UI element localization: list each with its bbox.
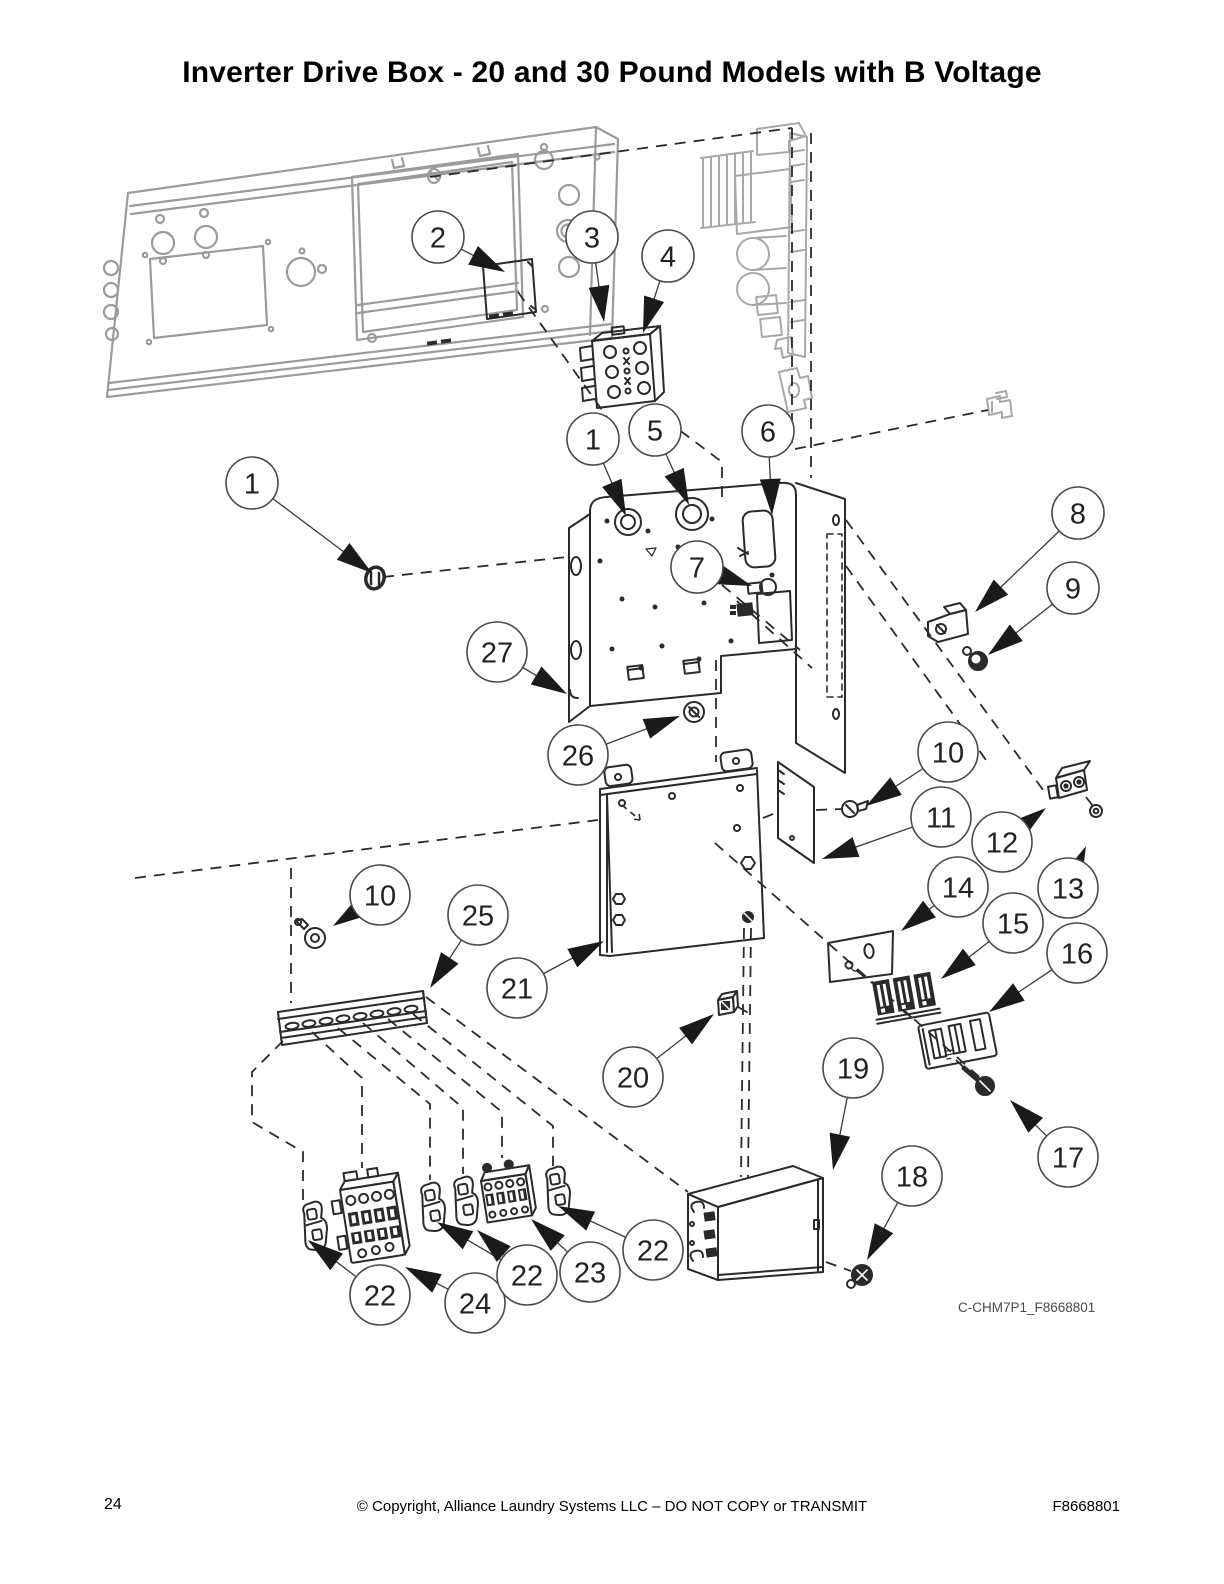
svg-text:25: 25 bbox=[462, 900, 494, 932]
svg-text:27: 27 bbox=[481, 637, 513, 669]
page-footer: 24 © Copyright, Alliance Laundry Systems… bbox=[0, 1496, 1224, 1526]
terminal-block-drawing bbox=[580, 326, 664, 408]
inverter-drive-drawing bbox=[701, 123, 812, 412]
callout-14: 14 bbox=[901, 857, 988, 931]
svg-text:13: 13 bbox=[1052, 873, 1084, 905]
svg-text:2: 2 bbox=[430, 222, 446, 254]
svg-text:15: 15 bbox=[997, 908, 1029, 940]
svg-text:7: 7 bbox=[689, 552, 705, 584]
callout-12: 12 bbox=[972, 808, 1046, 872]
contactor-24-drawing bbox=[328, 1165, 411, 1265]
terminal-12-drawing bbox=[1048, 761, 1090, 799]
callout-2: 2 bbox=[412, 211, 505, 272]
callout-1: 1 bbox=[226, 457, 372, 573]
svg-text:22: 22 bbox=[364, 1280, 396, 1312]
callout-24: 24 bbox=[405, 1267, 505, 1333]
svg-text:22: 22 bbox=[637, 1235, 669, 1267]
manual-page: Inverter Drive Box - 20 and 30 Pound Mod… bbox=[0, 0, 1224, 1584]
contactor-23-drawing bbox=[478, 1157, 536, 1222]
control-board-drawing bbox=[778, 762, 814, 863]
rear-panel-drawing bbox=[104, 127, 618, 397]
callout-1: 1 bbox=[567, 413, 626, 516]
screw-26-drawing bbox=[684, 702, 704, 722]
cover-box-drawing bbox=[688, 1166, 823, 1280]
mounting-bracket-drawing bbox=[569, 483, 845, 773]
small-block-20-drawing bbox=[718, 991, 738, 1015]
svg-text:21: 21 bbox=[501, 973, 533, 1005]
svg-text:8: 8 bbox=[1070, 498, 1086, 530]
svg-text:5: 5 bbox=[647, 415, 663, 447]
clamp-bracket-drawing bbox=[928, 603, 968, 642]
figure-code: C-CHM7P1_F8668801 bbox=[958, 1300, 1095, 1315]
svg-text:22: 22 bbox=[511, 1260, 543, 1292]
svg-text:11: 11 bbox=[926, 802, 956, 834]
screw-10-left-drawing bbox=[295, 919, 325, 948]
callout-18: 18 bbox=[867, 1146, 942, 1260]
callout-5: 5 bbox=[629, 404, 689, 505]
callout-20: 20 bbox=[603, 1014, 714, 1107]
svg-text:26: 26 bbox=[562, 740, 594, 772]
callout-10: 10 bbox=[333, 865, 410, 926]
copyright-text: © Copyright, Alliance Laundry Systems LL… bbox=[0, 1498, 1224, 1515]
svg-text:12: 12 bbox=[986, 827, 1018, 859]
callout-4: 4 bbox=[642, 230, 694, 333]
din-clip-22c bbox=[450, 1175, 481, 1226]
svg-text:9: 9 bbox=[1065, 573, 1081, 605]
callout-27: 27 bbox=[467, 622, 567, 694]
screw-18-drawing bbox=[847, 1265, 872, 1288]
svg-text:20: 20 bbox=[617, 1062, 649, 1094]
document-number: F8668801 bbox=[1052, 1498, 1120, 1515]
callout-6: 6 bbox=[742, 405, 794, 515]
svg-text:10: 10 bbox=[932, 737, 964, 769]
svg-text:1: 1 bbox=[244, 468, 260, 500]
callout-17: 17 bbox=[1010, 1100, 1098, 1187]
svg-text:23: 23 bbox=[574, 1257, 606, 1289]
din-rail-drawing bbox=[278, 991, 427, 1045]
callout-11: 11 bbox=[822, 787, 971, 859]
callout-9: 9 bbox=[988, 562, 1099, 655]
screw-10-right-drawing bbox=[842, 801, 868, 817]
exploded-parts-diagram: 2341561789272610111213141516171920182125… bbox=[0, 0, 1224, 1584]
svg-text:14: 14 bbox=[942, 872, 974, 904]
fuse-block-drawing bbox=[870, 971, 940, 1023]
inner-panel-drawing bbox=[600, 749, 764, 956]
screw-13-drawing bbox=[1090, 805, 1102, 817]
svg-text:4: 4 bbox=[660, 241, 676, 273]
screw-17-drawing bbox=[964, 1068, 994, 1095]
svg-text:10: 10 bbox=[364, 880, 396, 912]
callout-13: 13 bbox=[1038, 846, 1098, 918]
callout-layer: 2341561789272610111213141516171920182125… bbox=[226, 211, 1107, 1333]
gray-clip-drawing bbox=[987, 391, 1012, 418]
svg-text:17: 17 bbox=[1052, 1142, 1084, 1174]
svg-text:3: 3 bbox=[584, 222, 600, 254]
callout-21: 21 bbox=[487, 941, 604, 1018]
svg-text:6: 6 bbox=[760, 416, 776, 448]
svg-text:24: 24 bbox=[459, 1288, 491, 1320]
screw-9-drawing bbox=[963, 647, 987, 670]
callout-19: 19 bbox=[823, 1038, 883, 1170]
svg-text:19: 19 bbox=[837, 1053, 869, 1085]
svg-text:1: 1 bbox=[585, 424, 601, 456]
callout-26: 26 bbox=[548, 716, 680, 785]
svg-text:18: 18 bbox=[896, 1161, 928, 1193]
svg-text:16: 16 bbox=[1061, 938, 1093, 970]
